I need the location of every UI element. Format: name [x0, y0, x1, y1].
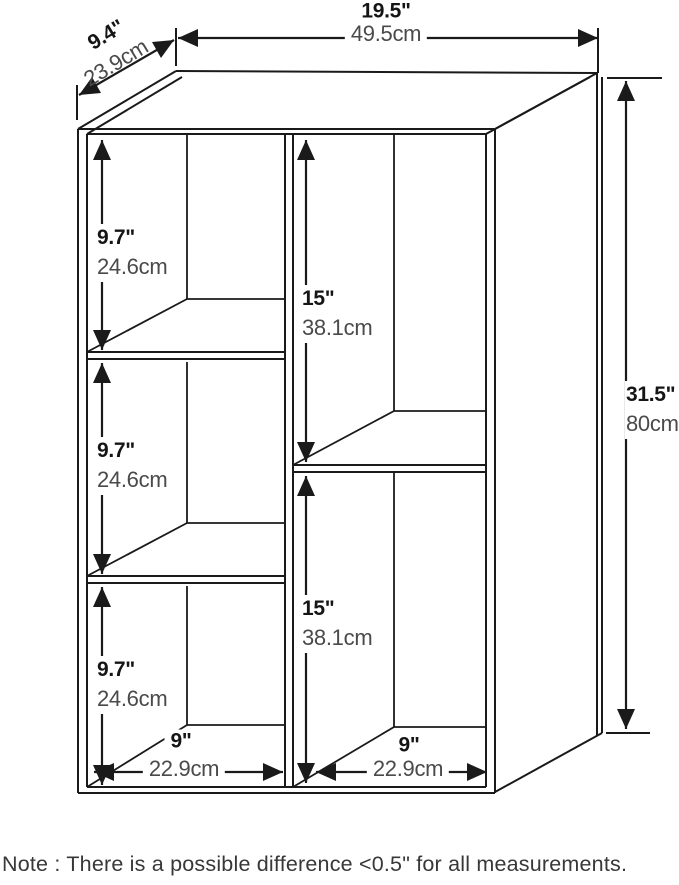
dim-height-inch-label: 31.5" [626, 383, 679, 407]
measurement-note: Note : There is a possible difference <0… [2, 852, 678, 877]
dim-middle-section-1-inch-label: 15" [302, 287, 372, 311]
dim-bottom-left-cm-label: 22.9cm [143, 757, 225, 781]
dim-left-section-2-inch-label: 9.7" [97, 439, 167, 463]
dim-middle-section-2-cm-label: 38.1cm [302, 625, 372, 651]
dim-left-section-1-cm-label: 24.6cm [97, 254, 167, 280]
dim-middle-section-1-label: 15" 38.1cm [301, 285, 377, 343]
dim-bottom-right-inch-label: 9" [392, 734, 425, 757]
dim-left-section-2-label: 9.7" 24.6cm [96, 437, 172, 495]
dim-width-cm-label: 49.5cm [345, 22, 427, 46]
dim-height-cm-label: 80cm [626, 411, 679, 437]
dim-middle-section-2-label: 15" 38.1cm [301, 595, 377, 653]
dim-left-section-1-inch-label: 9.7" [97, 226, 167, 250]
dim-middle-section-1-cm-label: 38.1cm [302, 315, 372, 341]
bookshelf-dimension-diagram: 19.5" 49.5cm 9.4" 23.9cm 31.5" 80cm 9.7"… [0, 0, 679, 885]
dim-left-section-2-cm-label: 24.6cm [97, 467, 167, 493]
dim-left-section-3-inch-label: 9.7" [97, 658, 167, 682]
dim-bottom-left-inch-label: 9" [164, 730, 197, 753]
dim-width-inch-label: 19.5" [361, 1, 410, 22]
dim-middle-section-2-inch-label: 15" [302, 597, 372, 621]
dim-height-label: 31.5" 80cm [625, 381, 679, 439]
dim-left-section-3-label: 9.7" 24.6cm [96, 656, 172, 714]
dim-left-section-1-label: 9.7" 24.6cm [96, 224, 172, 282]
dim-bottom-right-cm-label: 22.9cm [367, 757, 449, 781]
dim-left-section-3-cm-label: 24.6cm [97, 686, 167, 712]
